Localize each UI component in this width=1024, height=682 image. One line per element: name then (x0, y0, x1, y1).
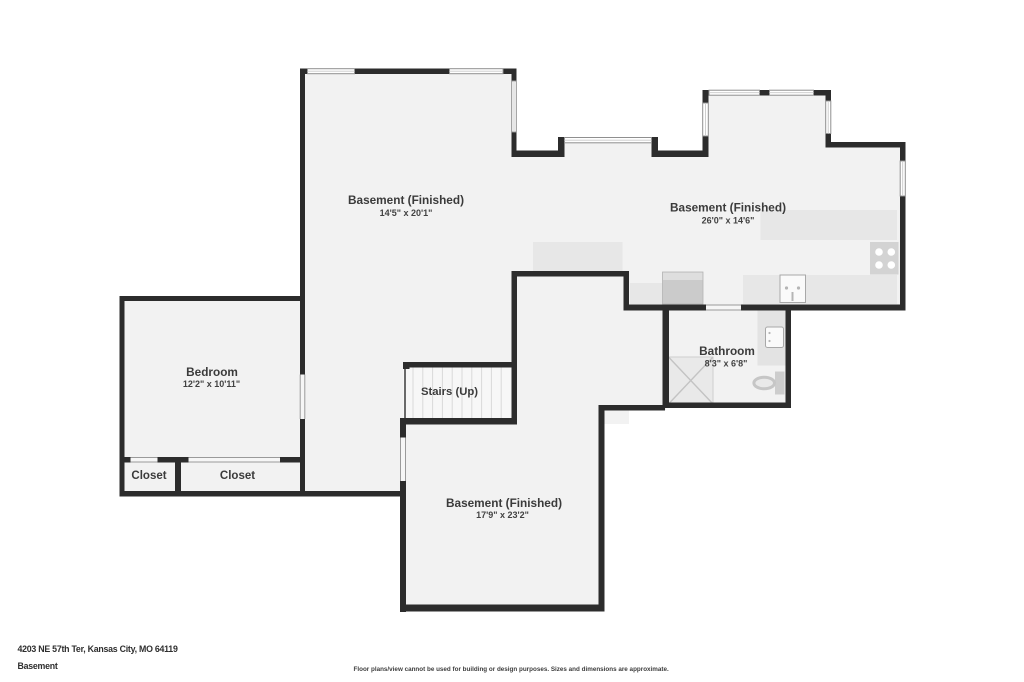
svg-text:Basement (Finished): Basement (Finished) (670, 201, 786, 215)
svg-text:Closet: Closet (220, 470, 255, 482)
svg-text:26'0" x 14'6": 26'0" x 14'6" (702, 216, 755, 226)
svg-text:12'2" x 10'11": 12'2" x 10'11" (183, 379, 240, 389)
svg-text:14'5" x 20'1": 14'5" x 20'1" (380, 208, 433, 218)
svg-text:4203 NE 57th Ter, Kansas City,: 4203 NE 57th Ter, Kansas City, MO 64119 (18, 644, 178, 654)
svg-text:17'9" x 23'2": 17'9" x 23'2" (476, 510, 529, 520)
svg-text:Closet: Closet (131, 470, 166, 482)
svg-text:Basement (Finished): Basement (Finished) (446, 496, 562, 510)
svg-text:Stairs (Up): Stairs (Up) (421, 386, 478, 398)
svg-text:Bathroom: Bathroom (699, 344, 755, 358)
svg-text:Bedroom: Bedroom (186, 365, 238, 379)
svg-text:Floor plans/view cannot be use: Floor plans/view cannot be used for buil… (354, 666, 670, 673)
svg-text:Basement: Basement (18, 661, 58, 671)
svg-text:Basement (Finished): Basement (Finished) (348, 193, 464, 207)
svg-text:8'3" x 6'8": 8'3" x 6'8" (705, 359, 748, 369)
